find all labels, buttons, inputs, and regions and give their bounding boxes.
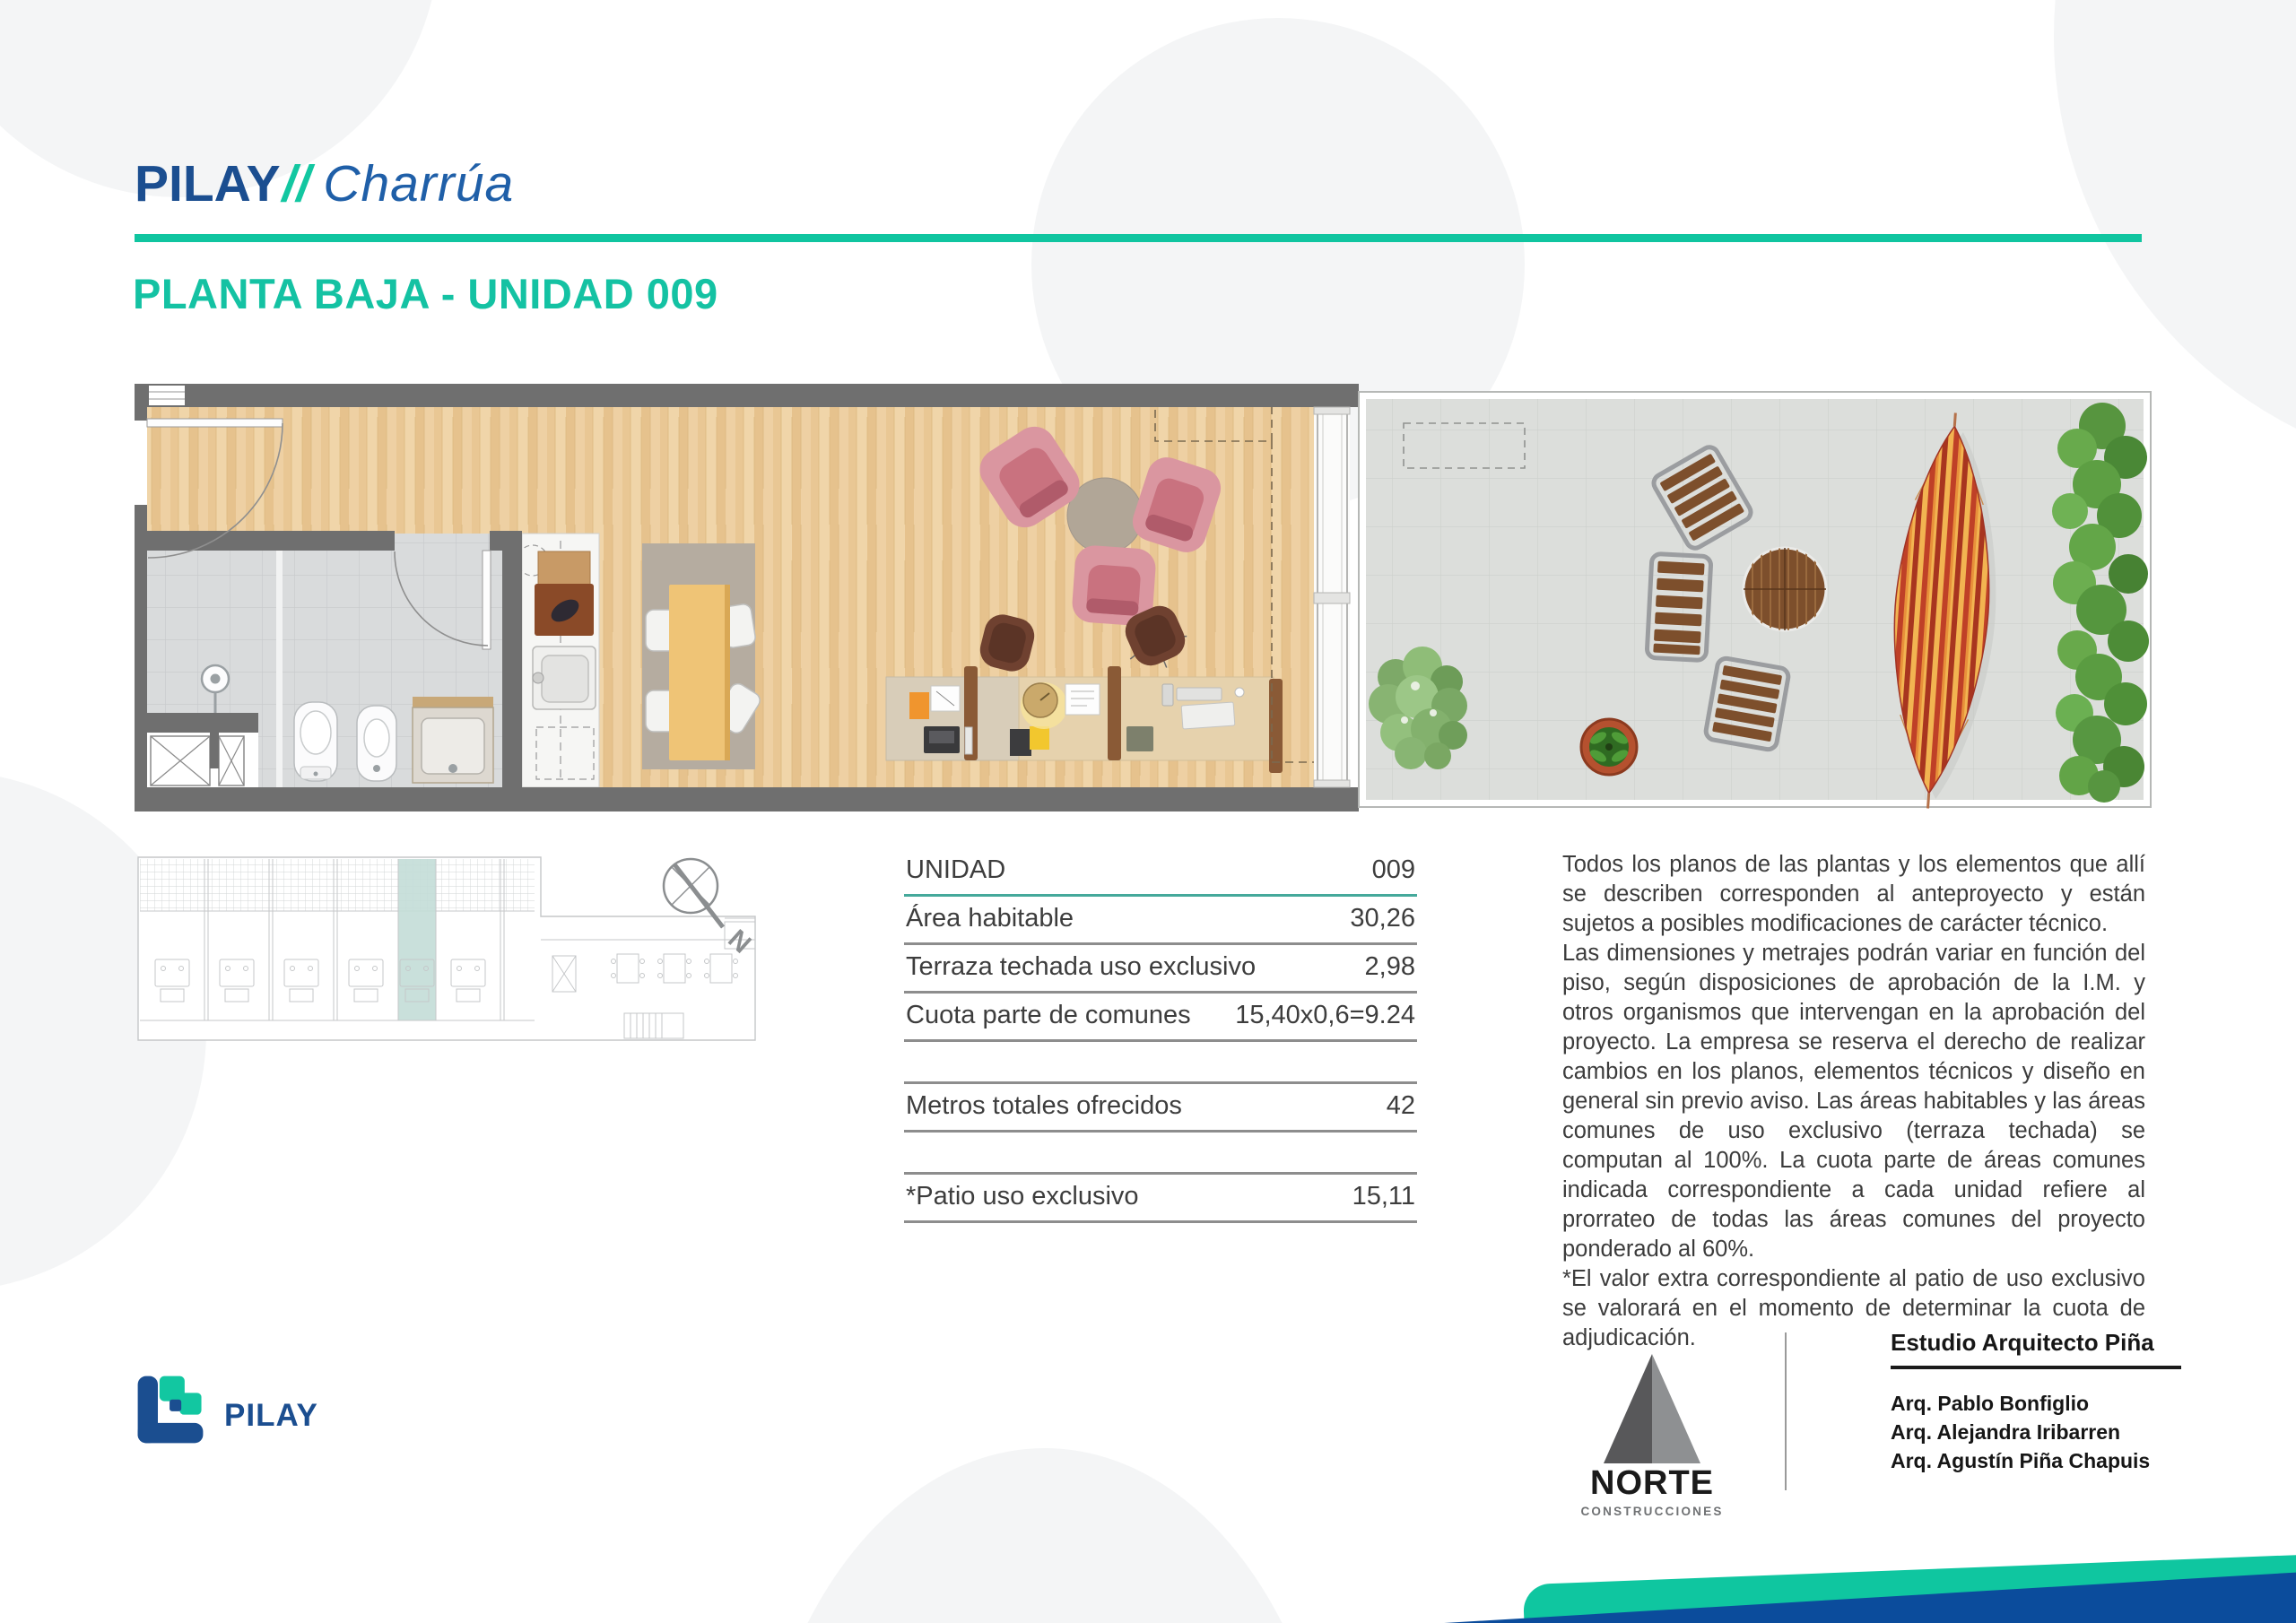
bg-circle-bottom-center — [749, 1448, 1341, 1623]
row-label: Terraza techada uso exclusivo — [906, 952, 1256, 982]
row-value: 15,11 — [1352, 1182, 1415, 1211]
glass-wall — [1314, 407, 1350, 787]
architect-name: Arq. Pablo Bonfiglio — [1891, 1389, 2187, 1418]
outdoor-table — [1744, 548, 1826, 630]
row-value: 15,40x0,6=9.24 — [1235, 1001, 1415, 1030]
potted-plant — [1581, 719, 1637, 775]
page-title: PLANTA BAJA - UNIDAD 009 — [133, 269, 718, 318]
pilay-mark-icon — [133, 1370, 208, 1449]
table-spacer — [904, 1133, 1417, 1172]
site-key-plan: N — [133, 850, 761, 1065]
table-row: *Patio uso exclusivo 15,11 — [904, 1172, 1417, 1223]
legal-paragraph: Todos los planos de las plantas y los el… — [1562, 850, 2145, 939]
architect-name: Arq. Alejandra Iribarren — [1891, 1418, 2187, 1446]
brochure-page: PILAY//Charrúa PLANTA BAJA - UNIDAD 009 — [0, 0, 2296, 1623]
brand-wordmark: PILAY — [135, 155, 281, 213]
dining-table — [669, 585, 730, 760]
norte-name: NORTE — [1590, 1464, 1714, 1502]
floor-plan — [133, 381, 2156, 820]
norte-subtitle: CONSTRUCCIONES — [1580, 1505, 1723, 1518]
pilay-wordmark: PILAY — [224, 1398, 318, 1434]
sink-vanity-icon — [413, 697, 493, 783]
table-row: Área habitable 30,26 — [904, 897, 1417, 945]
studio-underline — [1891, 1366, 2181, 1369]
table-row: Cuota parte de comunes 15,40x0,6=9.24 — [904, 994, 1417, 1042]
dining-area — [642, 543, 763, 769]
studio-title: Estudio Arquitecto Piña — [1891, 1329, 2187, 1357]
row-value: 42 — [1387, 1091, 1415, 1121]
legal-text: Todos los planos de las plantas y los el… — [1562, 850, 2145, 1353]
table-row: UNIDAD 009 — [904, 848, 1417, 897]
kitchen — [517, 534, 599, 787]
architect-name: Arq. Agustín Piña Chapuis — [1891, 1446, 2187, 1475]
footer-divider — [1785, 1332, 1787, 1490]
terrace — [1359, 392, 2151, 812]
highlighted-unit — [398, 859, 436, 1020]
row-label: *Patio uso exclusivo — [906, 1182, 1139, 1211]
studio-block: Estudio Arquitecto Piña Arq. Pablo Bonfi… — [1891, 1329, 2187, 1475]
pilay-footer-logo: PILAY — [133, 1370, 318, 1449]
row-value: 30,26 — [1350, 904, 1415, 933]
row-value: 009 — [1372, 855, 1415, 885]
table-row: Metros totales ofrecidos 42 — [904, 1081, 1417, 1133]
table-spacer — [904, 1042, 1417, 1081]
row-label: Área habitable — [906, 904, 1074, 933]
norte-logo: NORTE CONSTRUCCIONES — [1559, 1343, 1747, 1527]
unit-data-table: UNIDAD 009 Área habitable 30,26 Terraza … — [904, 848, 1417, 1223]
table-row: Terraza techada uso exclusivo 2,98 — [904, 945, 1417, 994]
row-label: UNIDAD — [906, 855, 1005, 885]
row-label: Metros totales ofrecidos — [906, 1091, 1182, 1121]
brand-logo: PILAY//Charrúa — [135, 154, 514, 213]
toilet-icon — [294, 702, 337, 781]
bidet-icon — [357, 706, 396, 781]
row-value: 2,98 — [1365, 952, 1415, 982]
service-shafts — [147, 733, 258, 787]
brand-project-name: Charrúa — [323, 155, 514, 213]
brand-slashes-icon: // — [283, 155, 311, 213]
header-rule — [135, 234, 2142, 242]
legal-paragraph: Las dimensiones y metrajes podrán variar… — [1562, 939, 2145, 1264]
row-label: Cuota parte de comunes — [906, 1001, 1191, 1030]
